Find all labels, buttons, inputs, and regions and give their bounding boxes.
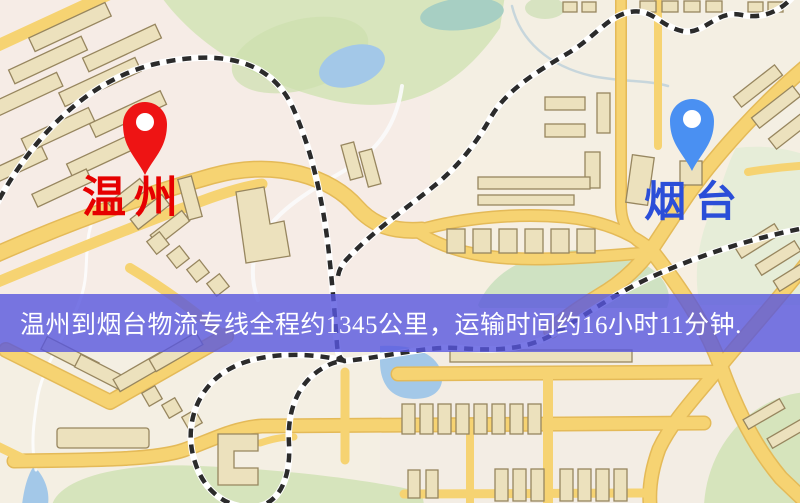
origin-marker-label: 温州 — [82, 176, 186, 220]
info-banner: 温州到烟台物流专线全程约1345公里，运输时间约16小时11分钟. — [0, 294, 800, 352]
map-pin-hole — [683, 110, 701, 128]
destination-marker-label: 烟台 — [644, 182, 746, 224]
info-banner-text: 温州到烟台物流专线全程约1345公里，运输时间约16小时11分钟. — [0, 305, 742, 341]
map-background — [0, 0, 800, 503]
logistics-route-map: 温州 烟台 温州到烟台物流专线全程约1345公里，运输时间约16小时11分钟. — [0, 0, 800, 503]
map-pin-hole — [136, 113, 154, 131]
